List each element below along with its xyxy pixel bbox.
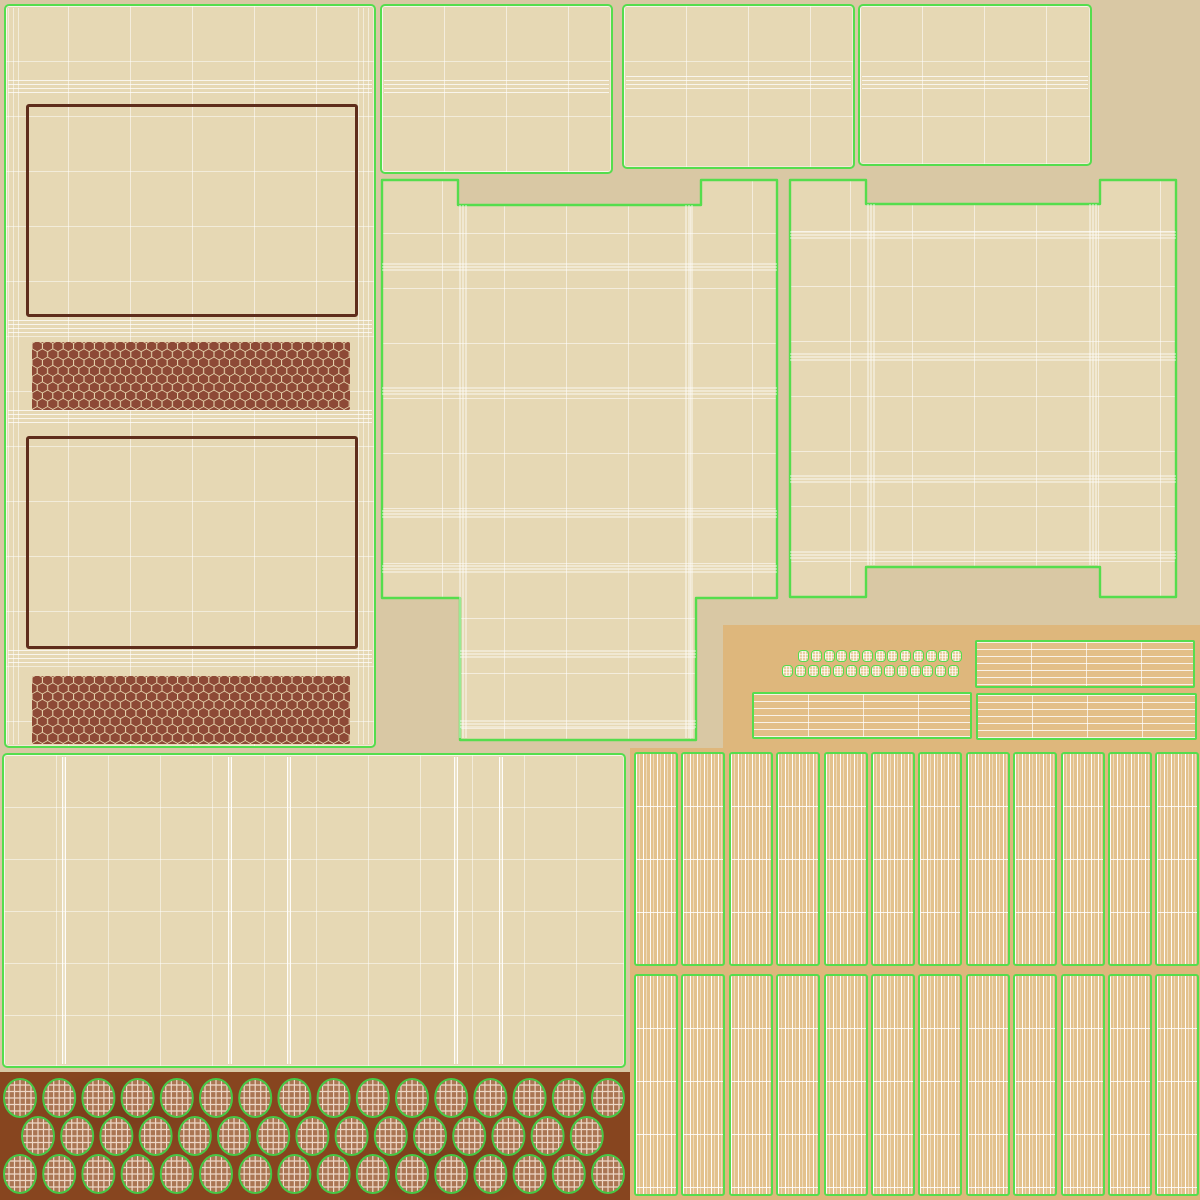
matchstick-column [1108, 974, 1152, 1196]
outer-wrap-uv-island [4, 4, 376, 748]
matchstick-column [966, 974, 1010, 1196]
match-cap-square [948, 665, 959, 677]
match-cap-square [897, 665, 908, 677]
match-cap-square [859, 665, 870, 677]
match-head [356, 1079, 390, 1117]
match-head [591, 1155, 625, 1193]
matchstick-column [918, 974, 962, 1196]
matchstick-column [776, 974, 820, 1196]
matchstick-column [1108, 752, 1152, 966]
matchstick-column [1013, 974, 1057, 1196]
fold-lines-right-edge [358, 8, 372, 744]
match-cap-square [811, 650, 822, 662]
match-heads-canvas [0, 1072, 630, 1200]
match-head [256, 1117, 290, 1155]
match-head [3, 1155, 37, 1193]
match-cap-square [875, 650, 886, 662]
matchstick-column [918, 752, 962, 966]
match-head [60, 1117, 94, 1155]
matchstick-column [824, 974, 868, 1196]
match-cap-square [935, 665, 946, 677]
matchstick-column [634, 752, 678, 966]
tray-side-strip-2 [752, 692, 972, 739]
match-head [374, 1117, 408, 1155]
match-cap-square [846, 665, 857, 677]
match-head [217, 1117, 251, 1155]
match-head [160, 1155, 194, 1193]
matchstick-column [729, 752, 773, 966]
match-head [121, 1155, 155, 1193]
fold-lines-band [384, 80, 609, 94]
match-cap-square [871, 665, 882, 677]
match-cap-uv-squares [775, 648, 975, 684]
match-cap-square [808, 665, 819, 677]
tray-side-strip-1 [975, 640, 1195, 688]
fold-lines-band [8, 410, 372, 424]
tray-unwrap-left-island [380, 178, 779, 742]
match-head [552, 1155, 586, 1193]
bright-seam-line [62, 757, 66, 1064]
fold-lines-band [626, 76, 851, 90]
match-head [277, 1155, 311, 1193]
matchstick-column [776, 752, 820, 966]
match-heads-region [0, 1072, 630, 1200]
match-cap-square [798, 650, 809, 662]
fold-lines-band [862, 76, 1088, 90]
uv-texture-atlas [0, 0, 1200, 1200]
match-cap-square [938, 650, 949, 662]
match-head [552, 1079, 586, 1117]
bottom-sheet-uv-island [2, 753, 626, 1068]
match-head [434, 1079, 468, 1117]
matchstick-column [1061, 752, 1105, 966]
bright-seam-line [287, 757, 291, 1064]
matchstick-column [634, 974, 678, 1196]
match-head [21, 1117, 55, 1155]
matchstick-column [871, 752, 915, 966]
match-head [99, 1117, 133, 1155]
matchstick-column [824, 752, 868, 966]
match-head [570, 1117, 604, 1155]
match-cap-square [820, 665, 831, 677]
match-cap-square [922, 665, 933, 677]
match-head [81, 1079, 115, 1117]
match-head [356, 1155, 390, 1193]
match-cap-square [884, 665, 895, 677]
fold-lines-band [8, 320, 372, 334]
match-head [395, 1155, 429, 1193]
match-head [395, 1079, 429, 1117]
matchstick-column [681, 752, 725, 966]
match-head [317, 1155, 351, 1193]
match-head [238, 1079, 272, 1117]
fold-lines-left-edge [8, 8, 22, 744]
top-flap-uv-3 [858, 4, 1092, 166]
match-head [199, 1079, 233, 1117]
match-cap-square [795, 665, 806, 677]
fold-lines-band [8, 650, 372, 664]
match-cap-square [862, 650, 873, 662]
top-flap-uv-2 [622, 4, 855, 169]
match-head [473, 1079, 507, 1117]
matchstick-column [871, 974, 915, 1196]
match-head [81, 1155, 115, 1193]
match-head [434, 1155, 468, 1193]
match-cap-square [900, 650, 911, 662]
match-head [42, 1155, 76, 1193]
fold-lines-band [8, 80, 372, 94]
tray-side-strip-3 [976, 693, 1197, 740]
matchstick-column [966, 752, 1010, 966]
match-cap-square [836, 650, 847, 662]
match-cap-square [926, 650, 937, 662]
match-cap-square [833, 665, 844, 677]
matchstick-sheet-region [630, 748, 1200, 1200]
matchstick-column [1155, 752, 1199, 966]
bright-seam-line [499, 757, 503, 1064]
match-cap-square [913, 650, 924, 662]
match-head [491, 1117, 525, 1155]
match-cap-square [910, 665, 921, 677]
match-head [3, 1079, 37, 1117]
match-head [317, 1079, 351, 1117]
striker-strip-top [32, 342, 350, 410]
match-cap-square [782, 665, 793, 677]
match-head [413, 1117, 447, 1155]
match-head [199, 1155, 233, 1193]
bright-seam-line [228, 757, 232, 1064]
match-cap-square [849, 650, 860, 662]
match-head [452, 1117, 486, 1155]
label-frame-top [26, 104, 358, 317]
striker-strip-bottom [32, 676, 350, 744]
matchstick-column [1061, 974, 1105, 1196]
label-frame-bottom [26, 436, 358, 649]
match-cap-square [951, 650, 962, 662]
matchstick-column [1155, 974, 1199, 1196]
matchstick-column [681, 974, 725, 1196]
match-head [238, 1155, 272, 1193]
top-flap-uv-1 [380, 4, 613, 174]
match-head [139, 1117, 173, 1155]
tray-unwrap-right-island [788, 176, 1180, 599]
match-head [178, 1117, 212, 1155]
match-cap-square [887, 650, 898, 662]
bright-seam-line [454, 757, 458, 1064]
match-head [335, 1117, 369, 1155]
matchstick-column [1013, 752, 1057, 966]
match-head [513, 1155, 547, 1193]
match-head [531, 1117, 565, 1155]
match-head [513, 1079, 547, 1117]
match-head [277, 1079, 311, 1117]
match-head [295, 1117, 329, 1155]
match-head [160, 1079, 194, 1117]
match-head [473, 1155, 507, 1193]
match-cap-square [824, 650, 835, 662]
matchstick-column [729, 974, 773, 1196]
match-head [121, 1079, 155, 1117]
match-head [591, 1079, 625, 1117]
match-head [42, 1079, 76, 1117]
